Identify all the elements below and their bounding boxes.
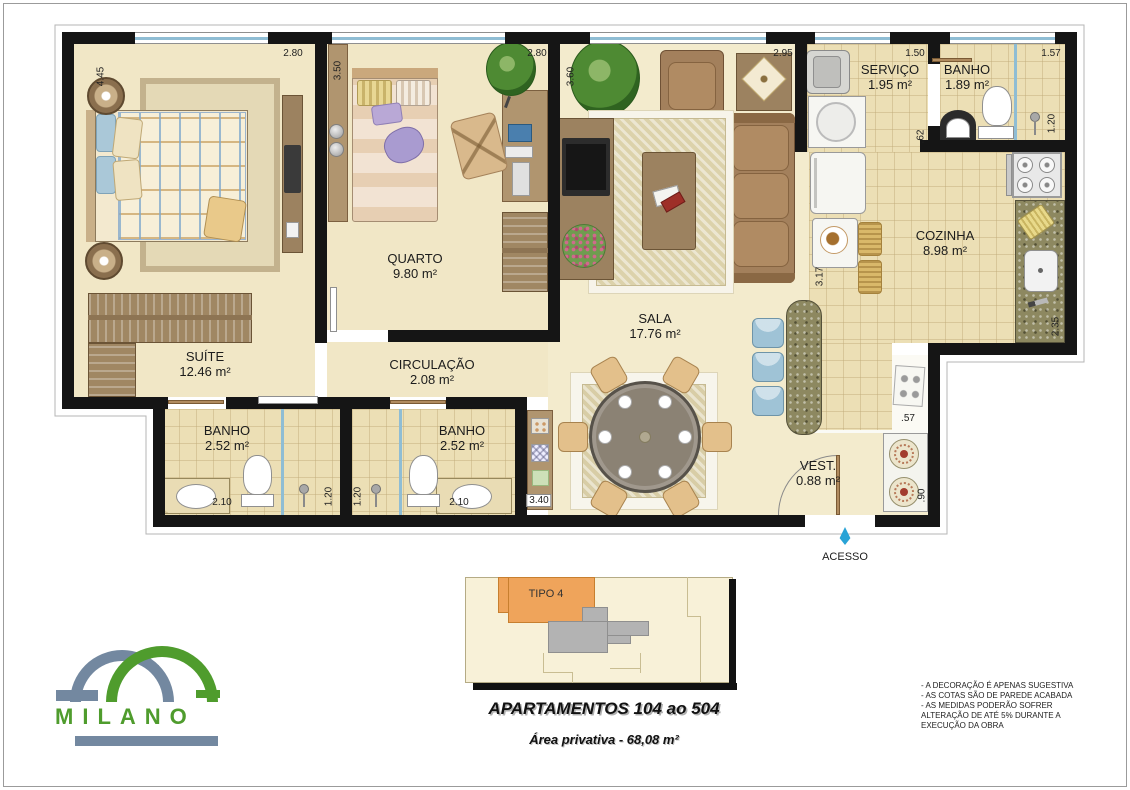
wall-segment — [515, 409, 527, 527]
dim-quarto-height: 3.50 — [333, 54, 344, 88]
window — [590, 32, 766, 44]
sala-sofa-cushion-1 — [733, 125, 789, 171]
room-label-quarto: QUARTO 9.80 m² — [387, 251, 442, 281]
suite-pillow-cream-2 — [112, 159, 142, 201]
cabinet-item-panel — [531, 418, 549, 434]
room-label-banho-social: BANHO 2.52 m² — [439, 423, 485, 453]
cabinet-item-pad — [532, 470, 549, 486]
dining-plate-ne — [658, 395, 672, 409]
banho-social-shower-divider — [399, 409, 402, 515]
suite-phone-icon — [286, 222, 299, 238]
window — [815, 32, 890, 44]
room-name: CIRCULAÇÃO — [389, 357, 474, 372]
wall-segment — [388, 330, 560, 342]
note-line: - AS MEDIDAS PODERÃO SOFRER — [921, 701, 1091, 711]
sala-sofa-arm-bottom — [727, 273, 795, 283]
stove-burner — [1017, 177, 1033, 193]
bar-stool-3 — [752, 386, 784, 416]
room-area: 2.08 m² — [389, 372, 474, 387]
wall-segment — [62, 32, 74, 409]
apartment-title: APARTAMENTOS 104 ao 504 — [488, 699, 719, 719]
dim-banho-social-bancada: 2.10 — [449, 497, 468, 508]
dim-banho-suite-box: 1.20 — [324, 480, 335, 514]
quarto-pillow-striped-1 — [357, 80, 392, 106]
dim-suite-height: 4.45 — [96, 60, 107, 94]
key-plan-line — [572, 672, 573, 683]
dim-suite-width: 2.80 — [283, 48, 302, 59]
cozinha-chair-1 — [858, 222, 882, 256]
key-plan-shadow-right — [729, 579, 736, 690]
wall-segment — [548, 32, 560, 342]
banho-social-toilet-tank — [407, 494, 440, 507]
wall-segment — [766, 32, 815, 44]
suite-nightstand-lamp-2 — [85, 242, 123, 280]
cozinha-food-plate — [820, 226, 848, 254]
room-name: VEST. — [796, 458, 840, 473]
key-plan-line — [640, 653, 641, 673]
dining-plate-sw — [618, 465, 632, 479]
suite-bed-headboard — [86, 110, 96, 242]
wall-segment — [340, 409, 352, 527]
room-name: SUÍTE — [179, 349, 230, 364]
bar-stool-2 — [752, 352, 784, 382]
cozinha-chair-2 — [858, 260, 882, 294]
sala-armchair-cushion — [668, 62, 716, 110]
room-area: 2.52 m² — [439, 438, 485, 453]
dim-bancada: 2.35 — [1051, 310, 1062, 344]
key-plan-line — [543, 672, 573, 673]
cozinha-fridge-handle — [814, 158, 817, 208]
dim-banho-servico-width: 1.57 — [1041, 48, 1060, 59]
room-area: 1.89 m² — [944, 77, 990, 92]
sala-plant — [570, 40, 640, 116]
stove-burner — [1017, 157, 1033, 173]
stove-burner — [1039, 157, 1055, 173]
room-label-sala: SALA 17.76 m² — [629, 311, 680, 341]
door-leaf-suite — [258, 396, 318, 404]
wall-segment — [928, 343, 940, 527]
door-leaf-quarto — [330, 287, 337, 332]
bar-stool-1 — [752, 318, 784, 348]
banho-social-shower-stem — [375, 493, 377, 507]
deco-plate-1 — [889, 439, 919, 469]
banho-servico-toilet-tank — [978, 126, 1014, 139]
banho-suite-toilet-bowl — [243, 455, 272, 495]
dining-plate-e — [678, 430, 692, 444]
suite-wardrobe-vertical — [88, 343, 136, 397]
key-plan-line — [687, 616, 701, 617]
quarto-monitor-icon — [508, 124, 532, 142]
private-area-subtitle: Área privativa - 68,08 m² — [529, 732, 679, 747]
wall-segment — [446, 397, 527, 409]
room-label-vest: VEST. 0.88 m² — [796, 458, 840, 488]
quarto-pillow-striped-2 — [396, 80, 431, 106]
room-area: 0.88 m² — [796, 473, 840, 488]
room-area: 2.52 m² — [204, 438, 250, 453]
key-plan-line — [687, 577, 688, 617]
quarto-pillow-purple — [371, 102, 403, 126]
wall-segment — [920, 140, 1077, 152]
suite-tv-icon — [284, 145, 301, 193]
dim-banho-social-box: 1.20 — [353, 480, 364, 514]
room-area: 1.95 m² — [861, 77, 919, 92]
wall-segment — [928, 343, 1077, 355]
dining-plate-nw — [618, 395, 632, 409]
banho-suite-sink — [176, 484, 216, 509]
window — [332, 32, 505, 44]
room-name: BANHO — [944, 62, 990, 77]
servico-tanque-basin — [813, 56, 841, 88]
stove-cooktop — [1012, 152, 1062, 198]
dining-chair-w — [558, 422, 588, 452]
quarto-knob-2 — [329, 142, 344, 157]
deco-plate-2 — [889, 477, 919, 507]
key-plan-unit-label: TIPO 4 — [529, 588, 564, 600]
dim-banho-suite-bancada: 2.10 — [212, 497, 231, 508]
servico-washer-door — [816, 102, 856, 142]
banho-servico-sink — [946, 118, 970, 138]
room-name: QUARTO — [387, 251, 442, 266]
key-plan-line — [700, 616, 701, 683]
brand-name: MILANO — [55, 704, 196, 730]
dim-servico-width: 1.50 — [905, 48, 924, 59]
dim-cozinha-height: 3.17 — [815, 260, 826, 294]
key-plan-line — [610, 668, 641, 669]
dining-centerpiece — [639, 431, 651, 443]
room-name: BANHO — [204, 423, 250, 438]
dim-banho-servico-shower: 1.20 — [1047, 107, 1058, 141]
wall-segment — [153, 397, 165, 527]
room-label-cozinha: COZINHA 8.98 m² — [916, 228, 975, 258]
room-label-banho-suite: BANHO 2.52 m² — [204, 423, 250, 453]
sala-sofa-cushion-3 — [733, 221, 789, 267]
apoio-table — [893, 365, 926, 407]
room-area: 17.76 m² — [629, 326, 680, 341]
suite-pillow-cream-1 — [112, 117, 144, 160]
wall-segment — [153, 515, 805, 527]
note-line: - AS COTAS SÃO DE PAREDE ACABADA — [921, 691, 1091, 701]
sala-flowers — [562, 224, 606, 268]
door-leaf-banho-social — [390, 400, 446, 404]
bar-counter — [786, 300, 822, 435]
room-name: SERVIÇO — [861, 62, 919, 77]
door-leaf-banho-suite — [168, 400, 224, 404]
dim-sala-height: 3.60 — [566, 60, 577, 94]
quarto-keyboard-icon — [505, 146, 533, 158]
key-plan-core-main — [548, 621, 608, 653]
dim-sala-width: 2.95 — [773, 48, 792, 59]
quarto-knob-1 — [329, 124, 344, 139]
wall-segment — [315, 32, 327, 343]
window — [135, 32, 268, 44]
banho-suite-toilet-tank — [241, 494, 274, 507]
dining-plate-w — [598, 430, 612, 444]
quarto-wardrobe-rail — [502, 248, 548, 253]
access-label: ACESSO — [822, 551, 868, 563]
banho-suite-shower-divider — [281, 409, 284, 515]
key-plan-core-arm — [607, 621, 649, 636]
room-area: 8.98 m² — [916, 243, 975, 258]
dim-nicho: .90 — [917, 479, 928, 513]
dining-chair-e — [702, 422, 732, 452]
room-label-suite: SUÍTE 12.46 m² — [179, 349, 230, 379]
room-label-circulacao: CIRCULAÇÃO 2.08 m² — [389, 357, 474, 387]
room-area: 12.46 m² — [179, 364, 230, 379]
dim-apoio: .57 — [901, 413, 915, 424]
dim-armario: 3.40 — [526, 494, 551, 507]
sala-tv-screen — [566, 144, 606, 190]
banho-servico-toilet-bowl — [982, 86, 1012, 126]
room-name: BANHO — [439, 423, 485, 438]
key-plan-line — [543, 653, 544, 673]
key-plan-core-step — [607, 635, 631, 644]
sala-sofa-cushion-2 — [733, 173, 789, 219]
stove-burner — [1039, 177, 1055, 193]
note-line: - A DECORAÇÃO É APENAS SUGESTIVA — [921, 681, 1091, 691]
logo-bar-green-right — [196, 690, 220, 698]
note-line: EXECUÇÃO DA OBRA — [921, 721, 1091, 731]
cabinet-item-grid — [531, 444, 549, 462]
room-name: SALA — [629, 311, 680, 326]
banho-servico-shower-stem — [1034, 121, 1036, 135]
room-label-servico: SERVIÇO 1.95 m² — [861, 62, 919, 92]
cozinha-fridge — [810, 152, 866, 214]
sala-sofa-arm-top — [727, 113, 795, 123]
room-area: 9.80 m² — [387, 266, 442, 281]
window — [950, 32, 1055, 44]
quarto-cpu-icon — [512, 162, 530, 196]
dim-servico-opening: .62 — [916, 120, 927, 154]
suite-throw-fold — [203, 195, 247, 242]
room-label-banho-servico: BANHO 1.89 m² — [944, 62, 990, 92]
banho-suite-shower-stem — [303, 493, 305, 507]
floor-plan-sheet: SUÍTE 12.46 m² QUARTO 9.80 m² CIRCULAÇÃO… — [0, 0, 1130, 790]
wall-segment — [1065, 32, 1077, 355]
wall-segment — [890, 32, 950, 44]
disclaimer-notes: - A DECORAÇÃO É APENAS SUGESTIVA - AS CO… — [921, 681, 1091, 731]
kitchen-faucet — [1038, 268, 1043, 273]
key-plan-shadow-bottom — [473, 683, 737, 690]
note-line: ALTERAÇÃO DE ATÉ 5% DURANTE A — [921, 711, 1091, 721]
logo-bar-gray-left — [56, 690, 98, 701]
suite-wardrobe-rail — [88, 315, 252, 320]
dim-quarto-width: 2.80 — [527, 48, 546, 59]
banho-servico-shower-divider — [1014, 44, 1017, 140]
room-name: COZINHA — [916, 228, 975, 243]
logo-underline-bar — [75, 736, 218, 746]
wall-segment — [795, 32, 807, 152]
banho-social-toilet-bowl — [409, 455, 438, 495]
quarto-bed-headboard — [352, 68, 438, 79]
dining-plate-se — [658, 465, 672, 479]
